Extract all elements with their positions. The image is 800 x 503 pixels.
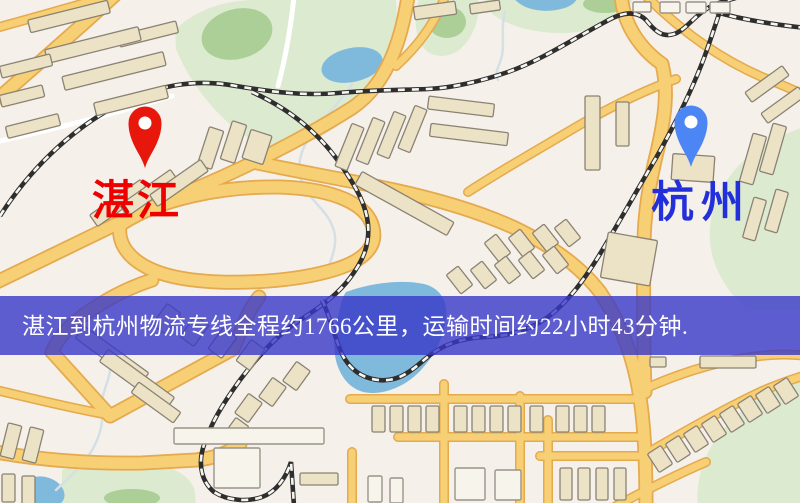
building [472, 406, 485, 432]
building [495, 470, 521, 500]
building [368, 476, 382, 502]
building [300, 473, 338, 485]
building [2, 474, 15, 502]
building [633, 2, 651, 12]
map-canvas[interactable]: 湛江 杭州 [0, 0, 800, 503]
building [372, 406, 385, 432]
building [508, 406, 521, 432]
building [596, 468, 608, 500]
building [616, 102, 629, 146]
building [426, 406, 439, 432]
building [490, 406, 503, 432]
building [556, 406, 569, 432]
building [455, 468, 485, 500]
building [390, 478, 403, 503]
building [174, 428, 324, 444]
building [700, 356, 756, 368]
building [660, 2, 680, 13]
building [600, 232, 657, 286]
building [390, 406, 403, 432]
building [214, 448, 260, 488]
pin-hole [685, 116, 698, 129]
origin-label: 湛江 [92, 178, 182, 225]
building [578, 468, 590, 500]
pin-hole [139, 117, 152, 130]
building [710, 2, 730, 13]
building [686, 2, 706, 13]
building [560, 468, 572, 500]
building [585, 96, 600, 170]
route-info-text: 湛江到杭州物流专线全程约1766公里，运输时间约22小时43分钟. [22, 307, 688, 341]
building [650, 357, 666, 367]
building [530, 406, 543, 432]
map-screenshot: 湛江 杭州 湛江到杭州物流专线全程约1766公里，运输时间约22小时43分钟. [0, 0, 800, 503]
building [408, 406, 421, 432]
building [614, 468, 626, 500]
building [22, 476, 35, 503]
building [592, 406, 605, 432]
building [574, 406, 587, 432]
destination-label: 杭州 [651, 179, 751, 227]
route-info-banner: 湛江到杭州物流专线全程约1766公里，运输时间约22小时43分钟. [0, 296, 800, 355]
building [454, 406, 467, 432]
